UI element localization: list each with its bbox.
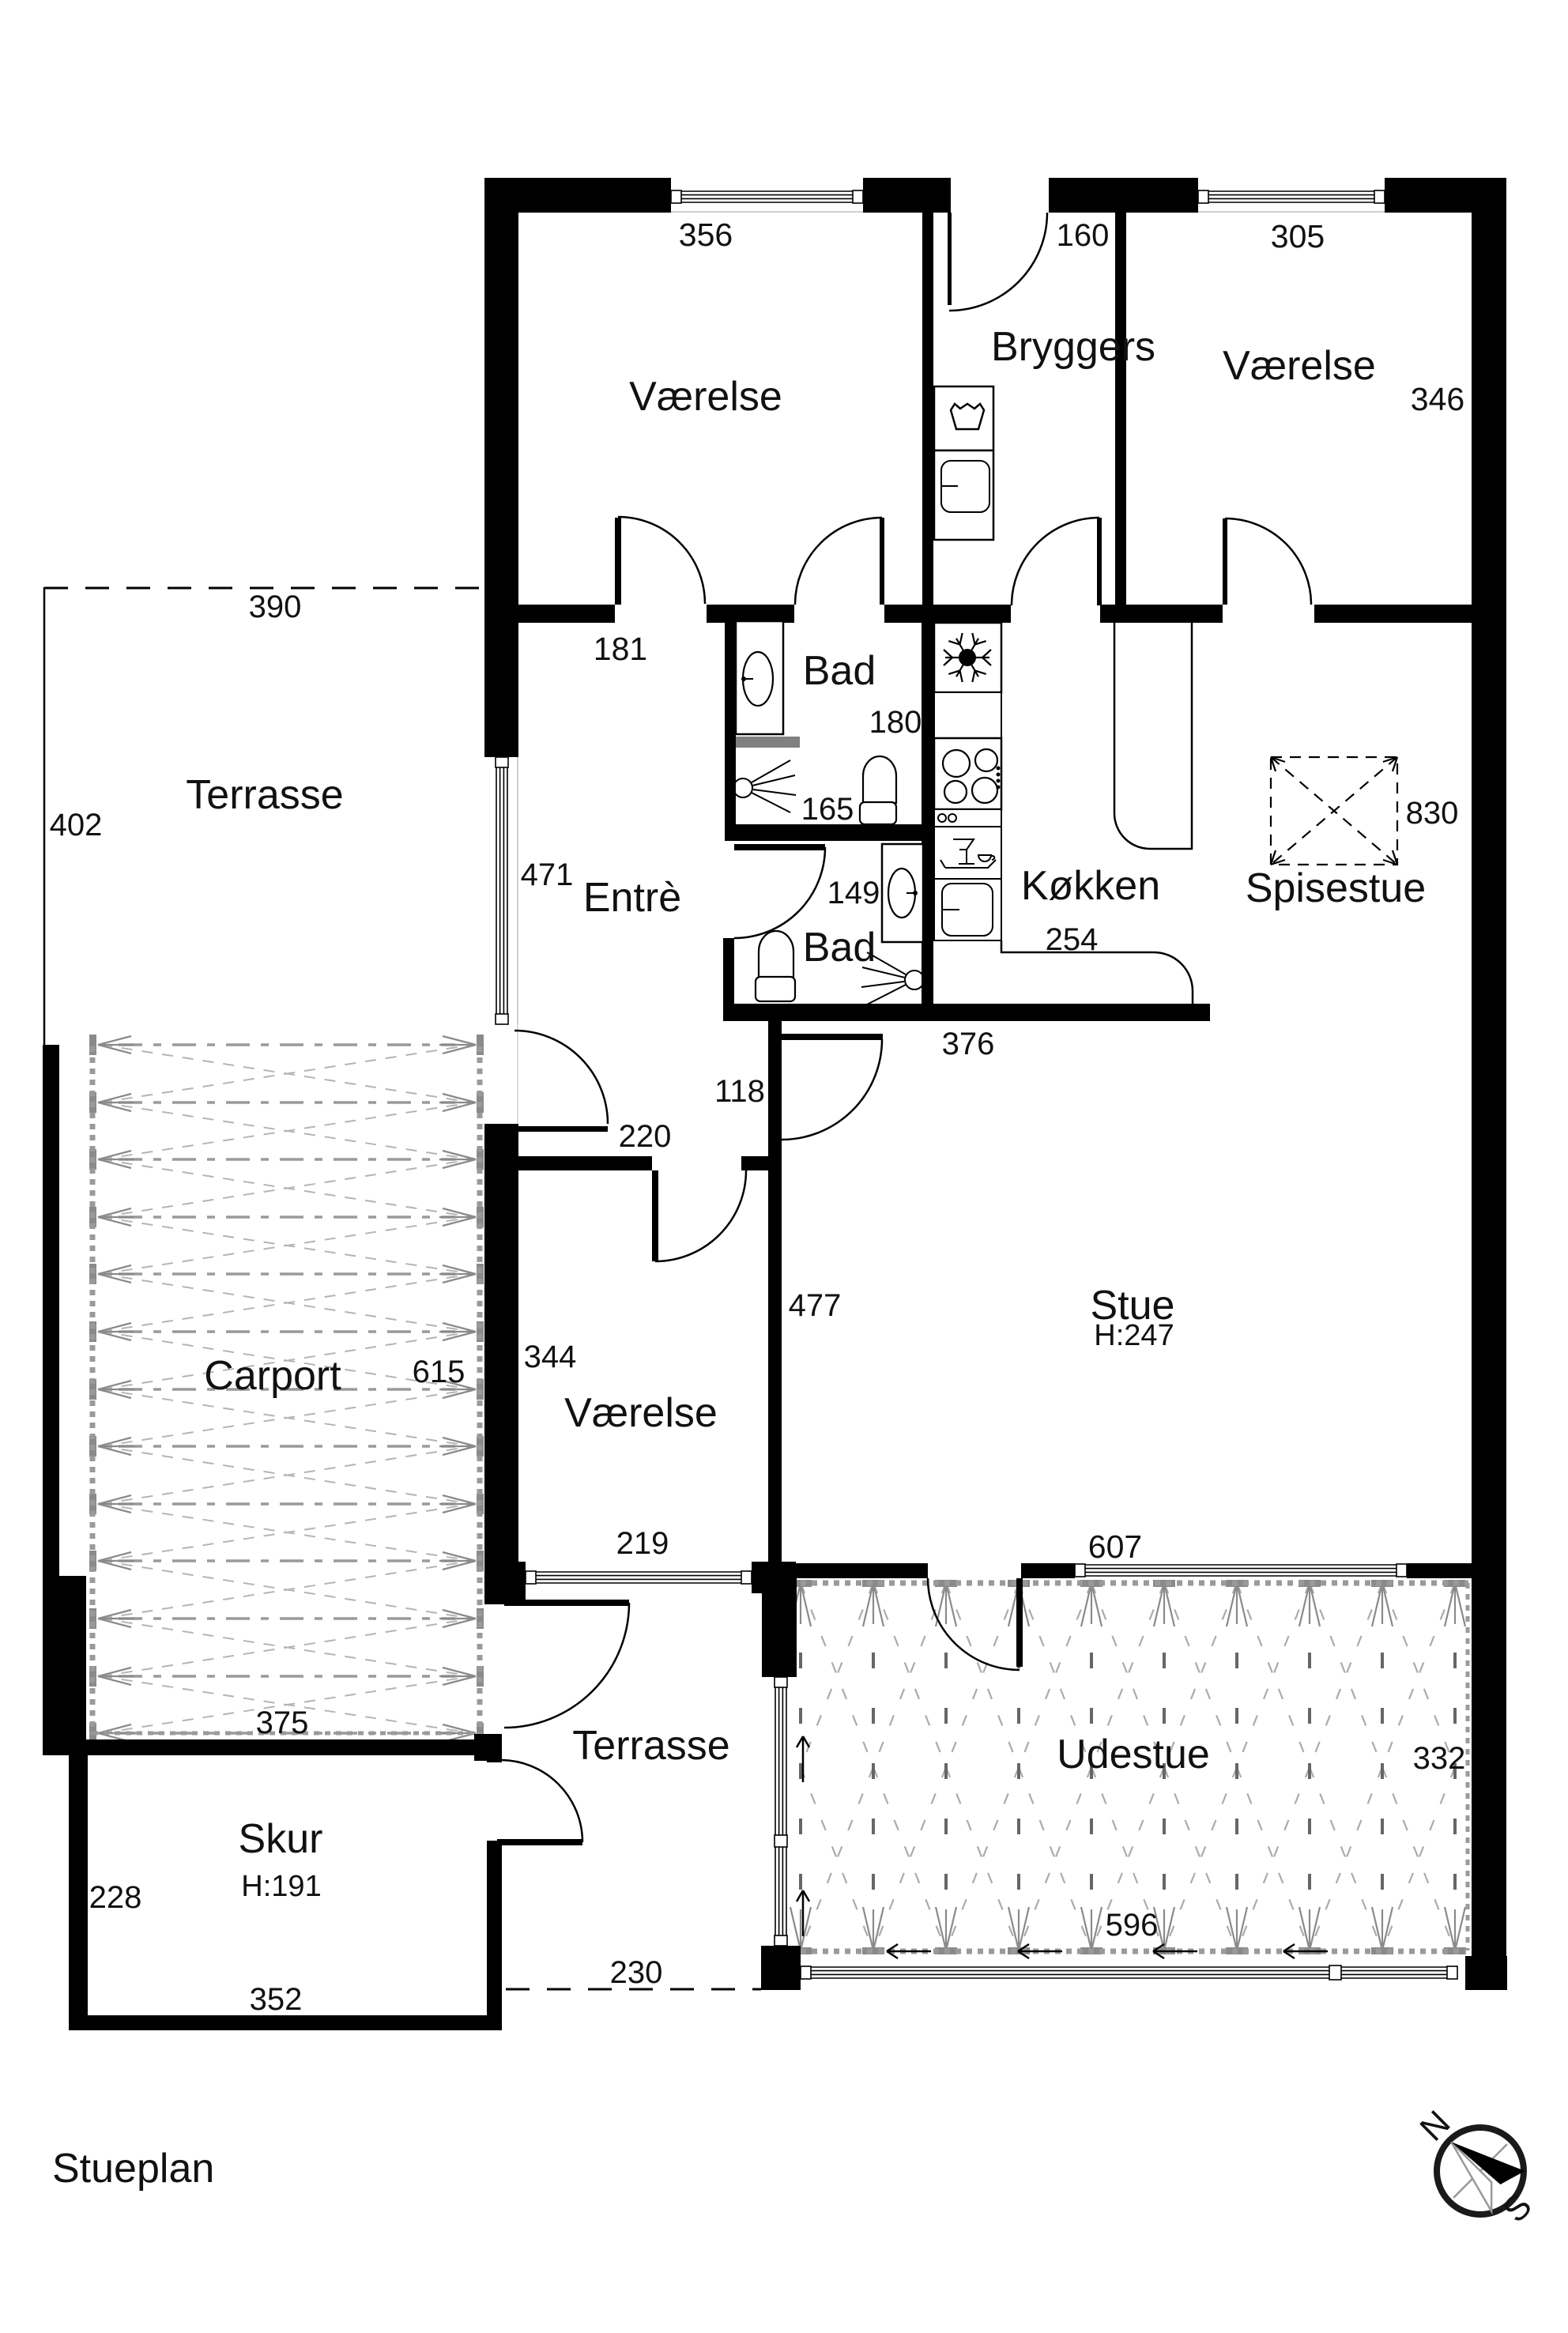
svg-text:Værelse: Værelse xyxy=(564,1390,718,1436)
svg-text:346: 346 xyxy=(1411,381,1464,417)
svg-text:118: 118 xyxy=(714,1074,765,1109)
svg-text:Køkken: Køkken xyxy=(1021,863,1160,909)
svg-text:305: 305 xyxy=(1271,218,1325,254)
svg-text:160: 160 xyxy=(1057,218,1110,253)
svg-text:332: 332 xyxy=(1413,1741,1466,1776)
svg-text:Entrè: Entrè xyxy=(583,875,681,921)
svg-text:H:247: H:247 xyxy=(1094,1319,1174,1352)
svg-text:220: 220 xyxy=(619,1119,672,1154)
svg-text:Bad: Bad xyxy=(803,648,876,694)
svg-text:402: 402 xyxy=(50,808,103,842)
svg-text:Terrasse: Terrasse xyxy=(572,1723,729,1769)
svg-text:615: 615 xyxy=(413,1355,465,1389)
svg-text:230: 230 xyxy=(610,1955,663,1990)
svg-text:344: 344 xyxy=(524,1340,577,1374)
svg-text:165: 165 xyxy=(801,792,854,827)
svg-text:390: 390 xyxy=(249,590,302,624)
svg-text:477: 477 xyxy=(789,1288,842,1323)
svg-text:Terrasse: Terrasse xyxy=(186,772,343,818)
svg-text:375: 375 xyxy=(256,1705,309,1740)
svg-text:352: 352 xyxy=(250,1982,303,2017)
svg-text:Spisestue: Spisestue xyxy=(1246,865,1426,911)
svg-text:Stueplan: Stueplan xyxy=(52,2146,214,2192)
svg-text:Bryggers: Bryggers xyxy=(991,324,1155,370)
svg-text:181: 181 xyxy=(594,631,647,667)
svg-text:376: 376 xyxy=(942,1027,995,1061)
svg-text:Bad: Bad xyxy=(803,925,876,971)
svg-text:596: 596 xyxy=(1106,1908,1159,1943)
svg-text:Carport: Carport xyxy=(204,1353,341,1399)
svg-text:H:191: H:191 xyxy=(241,1870,321,1903)
svg-text:356: 356 xyxy=(679,217,733,253)
svg-text:228: 228 xyxy=(89,1880,142,1915)
svg-text:254: 254 xyxy=(1046,922,1099,957)
svg-text:180: 180 xyxy=(869,705,922,740)
svg-text:Værelse: Værelse xyxy=(1223,343,1376,389)
svg-text:471: 471 xyxy=(521,857,574,892)
svg-text:830: 830 xyxy=(1406,796,1459,831)
svg-text:Værelse: Værelse xyxy=(629,374,782,420)
svg-text:Skur: Skur xyxy=(239,1816,323,1862)
svg-text:607: 607 xyxy=(1088,1528,1142,1565)
svg-text:149: 149 xyxy=(827,876,880,910)
svg-text:Udestue: Udestue xyxy=(1057,1732,1210,1777)
svg-text:219: 219 xyxy=(616,1526,669,1561)
